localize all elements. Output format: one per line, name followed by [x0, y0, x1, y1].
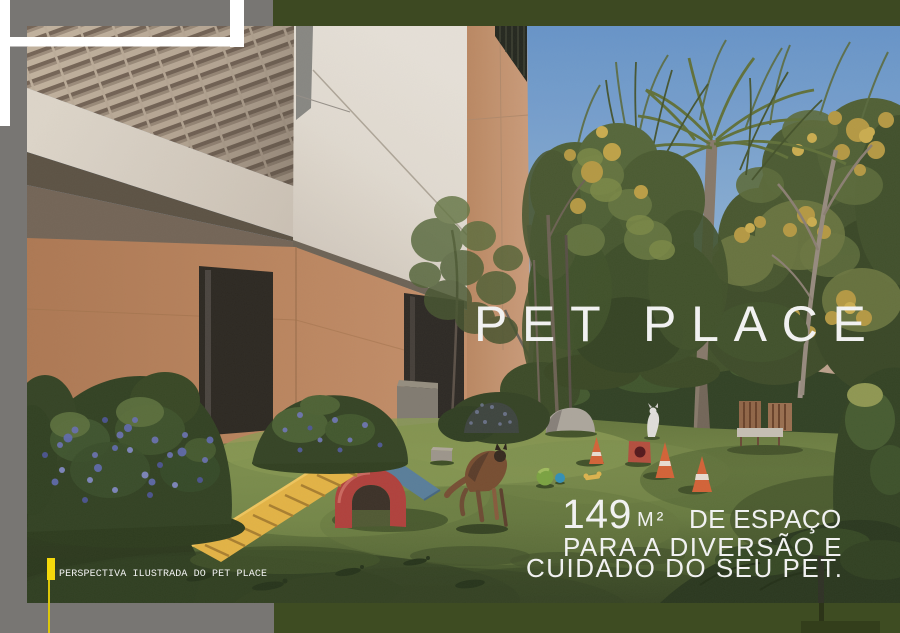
svg-text:PERSPECTIVA ILUSTRADA DO PET P: PERSPECTIVA ILUSTRADA DO PET PLACE: [59, 569, 267, 580]
